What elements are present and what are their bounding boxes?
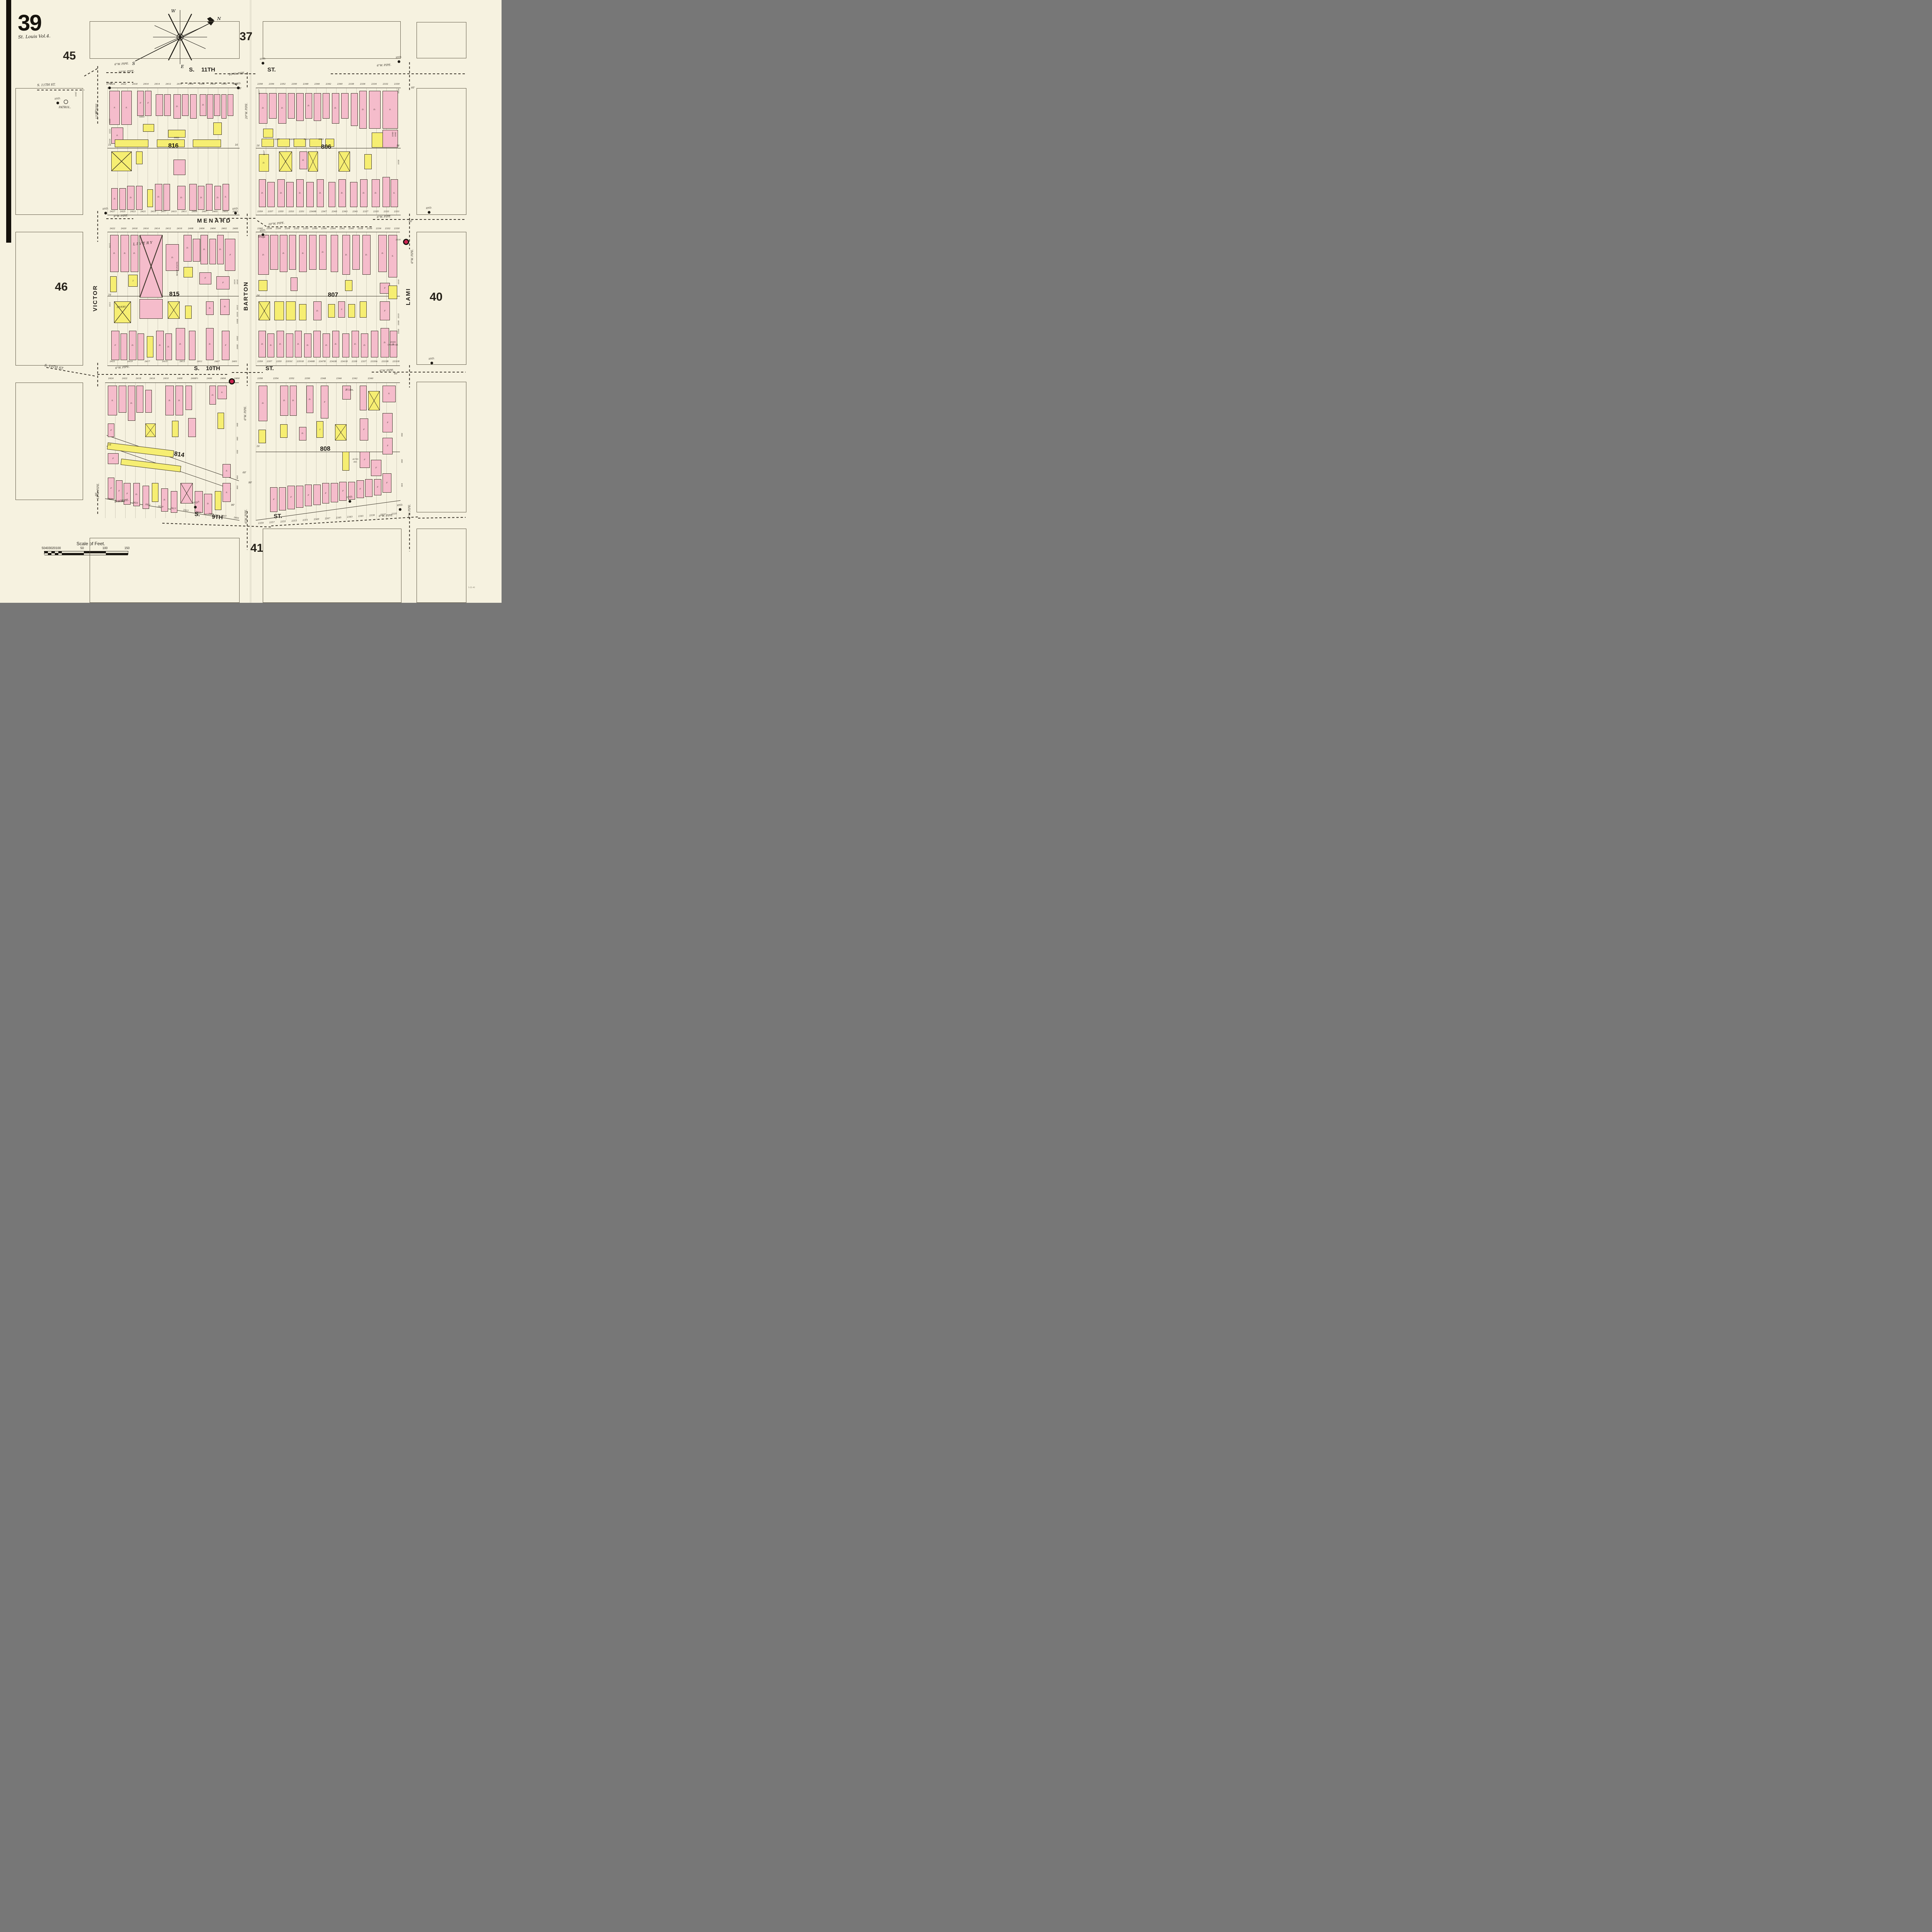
- building: [193, 139, 221, 147]
- building: 2: [259, 301, 270, 320]
- building: [213, 122, 222, 135]
- building: D.: [259, 386, 267, 421]
- building: [180, 483, 192, 503]
- building: F: [108, 478, 114, 499]
- dimension-label: 60': [411, 87, 415, 89]
- house-number: 2348: [303, 83, 308, 85]
- building: [288, 93, 295, 119]
- building: [308, 151, 318, 172]
- house-number: 2339: [369, 514, 375, 517]
- edge-address-number: 1010: [236, 312, 239, 317]
- building: [360, 301, 367, 317]
- building: D.: [295, 331, 302, 357]
- building: [328, 182, 336, 207]
- house-number: 2349B: [308, 361, 315, 363]
- building-label: S.: [389, 235, 396, 277]
- building: D.: [220, 299, 230, 315]
- street-centerline: [409, 365, 410, 388]
- building: [274, 301, 284, 320]
- house-number: 2408: [188, 83, 193, 85]
- patrol-box-icon: [64, 100, 68, 104]
- building-label: F: [305, 485, 312, 506]
- block-number-814: 814: [173, 451, 185, 459]
- house-number: 2402: [221, 228, 227, 230]
- map-annotation: SHED: [318, 139, 324, 141]
- building: D.: [332, 93, 339, 124]
- building: F: [116, 480, 122, 502]
- house-number: 2400: [233, 83, 238, 85]
- street-centerline: [257, 220, 267, 227]
- house-number: 2342: [339, 228, 345, 230]
- building-label: D.: [178, 186, 185, 209]
- building-label: D.: [206, 328, 213, 360]
- building: F: [383, 473, 391, 493]
- house-number: 2404: [210, 228, 216, 230]
- edge-address-number: 1057: [258, 89, 260, 94]
- building: F: [108, 453, 119, 464]
- house-number: 2351: [299, 211, 304, 213]
- building-label: D.: [381, 328, 389, 357]
- house-number: 2407: [214, 361, 220, 363]
- city-block-815: D.D.D.2D.D.D.D.FFFD.D.FD.D.D.D.D.F815: [107, 232, 239, 366]
- building-label: S.: [223, 184, 229, 210]
- building: [121, 333, 127, 360]
- house-number: 2417: [145, 361, 150, 363]
- building-label: D.: [131, 235, 138, 272]
- building: [335, 424, 347, 441]
- building: [145, 423, 156, 437]
- building: D.: [342, 235, 350, 275]
- building: F: [222, 331, 230, 360]
- building-label: D.: [277, 331, 284, 357]
- house-number: 2415: [171, 211, 177, 213]
- building: [331, 235, 338, 272]
- building-label: D.: [210, 386, 216, 404]
- adjacent-block-outline: [15, 383, 83, 500]
- adjacent-block-outline: [263, 21, 401, 59]
- house-number: 2346: [315, 83, 320, 85]
- building: D.: [129, 331, 136, 360]
- house-numbers-816-top: 2424242224182416241424122410240824062404…: [110, 83, 238, 85]
- dimension-label: 90': [231, 504, 235, 507]
- building: F: [339, 482, 347, 501]
- adjacent-block-outline: [15, 232, 83, 366]
- map-annotation: SHED: [304, 139, 309, 141]
- building-label: F: [116, 481, 122, 502]
- building-label: 2: [317, 422, 323, 437]
- water-pipe-label: 6"W. PIPE.: [114, 214, 128, 218]
- building-label: D.: [278, 180, 284, 207]
- house-number: 2402: [221, 83, 227, 85]
- building: D.: [323, 333, 330, 357]
- building-label: D.: [198, 186, 204, 209]
- street-label: 11TH: [201, 66, 215, 73]
- building: [296, 93, 304, 121]
- house-number: 2405: [212, 211, 218, 213]
- building: D.: [259, 93, 268, 124]
- building: [114, 301, 131, 323]
- building: F: [111, 331, 119, 360]
- building-label: D.: [218, 235, 223, 264]
- house-number: 2338: [349, 83, 354, 85]
- map-sheet: 39 St. Louis Vol.4. 45 46 37 40 41 W N S…: [0, 0, 502, 603]
- house-number: 2336: [367, 228, 372, 230]
- building: [147, 189, 153, 207]
- house-number: 2410: [177, 83, 182, 85]
- edge-address-number: 1012: [236, 305, 239, 310]
- block-number-806: 806: [321, 144, 332, 151]
- building: [136, 386, 143, 413]
- building: [263, 129, 273, 138]
- building: [328, 304, 335, 318]
- building-label: F: [225, 239, 235, 270]
- building: D.: [175, 386, 184, 415]
- hydrant-label: HYD.: [396, 56, 402, 59]
- building-label: D.: [314, 302, 321, 320]
- dimension-label: 60': [394, 372, 398, 375]
- building: [296, 486, 303, 508]
- house-number: 2334: [371, 83, 377, 85]
- city-block-816: S.S.FFD.D.S.D.D.D.D.D.D.S.816: [107, 88, 240, 215]
- house-number: 2330: [394, 228, 400, 230]
- hydrant-label: HYD.: [260, 57, 266, 61]
- edge-address-number: 904: [401, 483, 403, 487]
- street-centerline: [97, 363, 98, 388]
- building-label: 2: [129, 275, 137, 286]
- house-number: 2349: [314, 518, 319, 521]
- building-label: D.: [128, 386, 135, 420]
- house-number: 2350: [305, 378, 310, 380]
- house-number: 2410: [163, 378, 169, 380]
- house-number: 2352: [289, 378, 294, 380]
- building: F: [360, 418, 368, 440]
- house-number: 2355: [278, 211, 284, 213]
- building-label: F: [217, 277, 229, 289]
- house-numbers-807-top: 2360235823562354235223502348234623442342…: [257, 228, 400, 230]
- building: S.: [121, 91, 132, 125]
- house-number: 2353C: [286, 361, 293, 363]
- building: [299, 304, 306, 320]
- house-number: 2406: [199, 228, 204, 230]
- building: D.: [110, 235, 119, 272]
- street-label: BARTON: [243, 281, 249, 311]
- building: D.: [305, 93, 313, 119]
- street-label: ST.: [267, 66, 276, 73]
- edge-address-number: 1030: [398, 88, 400, 94]
- building: 3: [338, 301, 345, 317]
- house-number: 2421: [110, 361, 115, 363]
- building: D.: [259, 331, 266, 357]
- building: [365, 479, 372, 497]
- building-label: D.: [201, 235, 207, 264]
- house-number: 2406: [199, 83, 204, 85]
- house-number: 2337: [380, 514, 386, 516]
- building: [262, 139, 274, 146]
- building: D.: [361, 333, 368, 357]
- block-number-816: 816: [168, 143, 179, 150]
- house-number: 2416: [150, 378, 155, 380]
- building-label: D.: [221, 299, 229, 315]
- house-number: 2358: [257, 378, 263, 380]
- building-label: D.: [304, 334, 311, 357]
- building: 2: [316, 421, 324, 438]
- building-label: F: [321, 386, 328, 418]
- building: D.: [290, 386, 297, 416]
- building: [259, 280, 267, 291]
- dimension-label: 60': [243, 471, 246, 474]
- house-number: 2350: [303, 228, 308, 230]
- edge-address-number: 1008: [398, 320, 400, 325]
- building-label: D.: [259, 180, 266, 207]
- adjacent-block-outline: [90, 538, 240, 603]
- building: [145, 390, 152, 413]
- building: F: [225, 239, 235, 271]
- house-number: 2339: [352, 361, 357, 363]
- building: F: [216, 276, 230, 290]
- city-block-806: D.D.D.D.D.D.S.D.2D.D.D.D.D.D.D.D.S.806: [256, 88, 401, 215]
- house-number: 2350: [292, 83, 297, 85]
- map-annotation: B'l.Sm.: [345, 389, 354, 391]
- building: D.: [352, 331, 359, 357]
- building: D.: [156, 331, 164, 360]
- house-number: 2351B: [297, 361, 304, 363]
- building-label: D.: [121, 235, 129, 272]
- building: [189, 331, 196, 360]
- hydrant-icon: [399, 508, 401, 511]
- house-number: 2333: [384, 211, 389, 213]
- house-number: 2401: [232, 361, 237, 363]
- house-number: 2340: [349, 228, 354, 230]
- building-label: D.: [156, 331, 163, 360]
- building: S.: [218, 386, 227, 399]
- edge-address-number: 1015: [109, 243, 111, 248]
- building: [360, 386, 367, 410]
- map-annotation: WOOD POSTS.: [176, 261, 179, 276]
- house-number: 2331B: [393, 361, 400, 363]
- building-label: D.: [323, 334, 330, 357]
- building-label: F: [380, 302, 389, 320]
- house-number: 2427: [110, 211, 115, 213]
- building: [352, 235, 360, 270]
- house-number: 2416: [143, 83, 149, 85]
- water-pipe-label: 6"W. PIPE.: [377, 63, 391, 67]
- edge-address-number: 1036: [398, 160, 400, 165]
- building: [279, 487, 286, 510]
- building-label: D.: [259, 386, 267, 421]
- building: [190, 94, 197, 118]
- house-number: 2336: [360, 83, 366, 85]
- house-numbers-806-top: 2358235623522350234823462342234023382336…: [257, 83, 400, 85]
- building: D.: [280, 235, 288, 272]
- building-label: F: [145, 91, 151, 116]
- house-number: 2337: [363, 211, 368, 213]
- building-label: S.: [383, 91, 397, 128]
- building: S.: [388, 235, 397, 277]
- house-number: 2359: [257, 361, 263, 363]
- building-label: D.: [268, 334, 274, 357]
- building: [172, 421, 179, 437]
- building: [163, 184, 170, 211]
- building: [323, 93, 330, 119]
- house-number: 2346: [321, 228, 327, 230]
- building: D.: [362, 235, 371, 275]
- street-centerline: [247, 214, 248, 236]
- building: D.: [381, 328, 389, 357]
- house-number: 2345: [336, 517, 341, 519]
- house-number: 2418: [136, 378, 141, 380]
- house-number: 2337: [361, 361, 367, 363]
- building: [164, 94, 171, 116]
- hydrant-icon: [398, 60, 400, 63]
- building: [345, 280, 352, 291]
- building: [209, 239, 216, 264]
- dimension-label: 60': [95, 110, 98, 114]
- house-number: 2414: [155, 228, 160, 230]
- building: [371, 331, 378, 357]
- building: D.: [299, 235, 307, 272]
- building: [289, 235, 296, 270]
- house-number: 2404: [220, 378, 226, 380]
- house-number: 2347B: [319, 361, 326, 363]
- house-number: 2335: [373, 211, 379, 213]
- house-number: 2340: [337, 83, 343, 85]
- building: [314, 93, 321, 121]
- house-number: 2407: [202, 211, 207, 213]
- building-label: D.: [369, 91, 380, 128]
- building: [168, 301, 180, 319]
- hydrant-icon: [262, 62, 264, 65]
- building: D.: [267, 333, 275, 357]
- building: [286, 182, 294, 207]
- water-pipe-label: 20"W. PIPE.: [118, 70, 135, 74]
- building: D.: [165, 333, 172, 360]
- building: [267, 182, 275, 207]
- building-label: S.: [223, 483, 230, 502]
- house-number: 2353: [289, 211, 294, 213]
- building: [286, 301, 295, 320]
- house-number: 2417: [161, 211, 167, 213]
- street-centerline: [247, 364, 248, 386]
- building-label: D.: [281, 386, 288, 415]
- building: D.: [296, 179, 304, 207]
- house-number: 2347: [325, 517, 330, 520]
- building: [388, 286, 397, 299]
- building-label: S.: [223, 464, 230, 477]
- building-label: D.: [200, 95, 206, 116]
- building: [342, 333, 350, 357]
- building-label: D.: [166, 334, 172, 360]
- building-label: F: [357, 481, 364, 498]
- building: [368, 391, 380, 410]
- house-number: 2332: [383, 83, 388, 85]
- house-number: 2404: [210, 83, 216, 85]
- building: [364, 154, 372, 169]
- city-block-807: D.D.D.D.D.D.D.S.F2D.3FD.D.D.D.D.D.D.D.D.…: [256, 232, 400, 366]
- dimension-label: 90': [248, 481, 252, 484]
- building: [286, 333, 293, 357]
- house-number: 2352: [294, 228, 299, 230]
- house-number: 2346: [336, 378, 342, 380]
- water-pipe-label: 20"W. PIPE.: [229, 71, 245, 76]
- building: S.: [383, 91, 398, 129]
- house-number: 2422: [121, 83, 126, 85]
- building: [119, 188, 126, 210]
- house-number: 2355: [281, 520, 286, 523]
- building-label: F: [138, 91, 143, 116]
- building-label: D.: [320, 235, 326, 269]
- building: F: [305, 485, 312, 507]
- edge-address-number: 1031: [109, 129, 111, 134]
- building: S.: [223, 184, 229, 211]
- building-label: F: [288, 486, 294, 509]
- building-label: S.: [218, 386, 226, 399]
- building: [184, 267, 193, 278]
- building: D.: [304, 333, 311, 357]
- building: S.: [223, 464, 231, 478]
- building: [136, 151, 143, 164]
- street-label: ST.: [265, 365, 274, 372]
- building: [193, 239, 200, 262]
- house-number: 2344: [330, 228, 336, 230]
- building-label: D.: [176, 386, 183, 415]
- building: [188, 418, 196, 437]
- building-label: D.: [307, 386, 313, 413]
- street-centerline: [418, 517, 466, 519]
- house-number: 2412: [166, 228, 171, 230]
- house-number: 2423: [130, 211, 136, 213]
- building: D.: [128, 386, 135, 421]
- building: [348, 304, 355, 318]
- building-label: D.: [280, 235, 287, 272]
- house-number: 2400: [233, 228, 238, 230]
- building: [207, 94, 213, 118]
- building: [156, 94, 163, 116]
- building: F: [360, 452, 370, 468]
- adjacent-block-outline: [417, 88, 466, 215]
- building-label: F: [374, 480, 381, 495]
- house-number: 2409: [192, 211, 197, 213]
- building-label: D.: [299, 427, 306, 440]
- building: D.: [359, 91, 367, 129]
- house-number: 2331: [394, 211, 400, 213]
- building: F: [322, 483, 330, 503]
- house-number: 2425: [120, 211, 126, 213]
- house-number: 2356: [276, 228, 281, 230]
- map-annotation: HO.: [354, 461, 357, 463]
- house-number: 2333B: [381, 361, 388, 363]
- building-label: F: [323, 483, 329, 503]
- street-centerline: [84, 68, 99, 76]
- hydrant-icon: [56, 102, 59, 104]
- hydrant-icon: [428, 211, 430, 214]
- building-label: D.: [332, 94, 339, 123]
- map-annotation: UNDER GR.: [388, 344, 398, 346]
- street-label: S.: [194, 365, 199, 372]
- house-number: 2340: [368, 378, 373, 380]
- house-numbers-815-top: 2422242024182416241424122410240824062404…: [110, 228, 238, 230]
- house-number: 2419: [127, 361, 133, 363]
- dimension-label: 16: [108, 444, 111, 446]
- map-annotation: Drugs: [258, 236, 265, 238]
- street-centerline: [331, 73, 466, 74]
- building-label: D.: [299, 235, 307, 272]
- building: [110, 276, 117, 292]
- building-label: D.: [112, 189, 117, 209]
- building: D.: [155, 184, 162, 211]
- building: [269, 93, 277, 119]
- adjacent-block-outline: [417, 382, 466, 512]
- house-number: 2343: [342, 211, 347, 213]
